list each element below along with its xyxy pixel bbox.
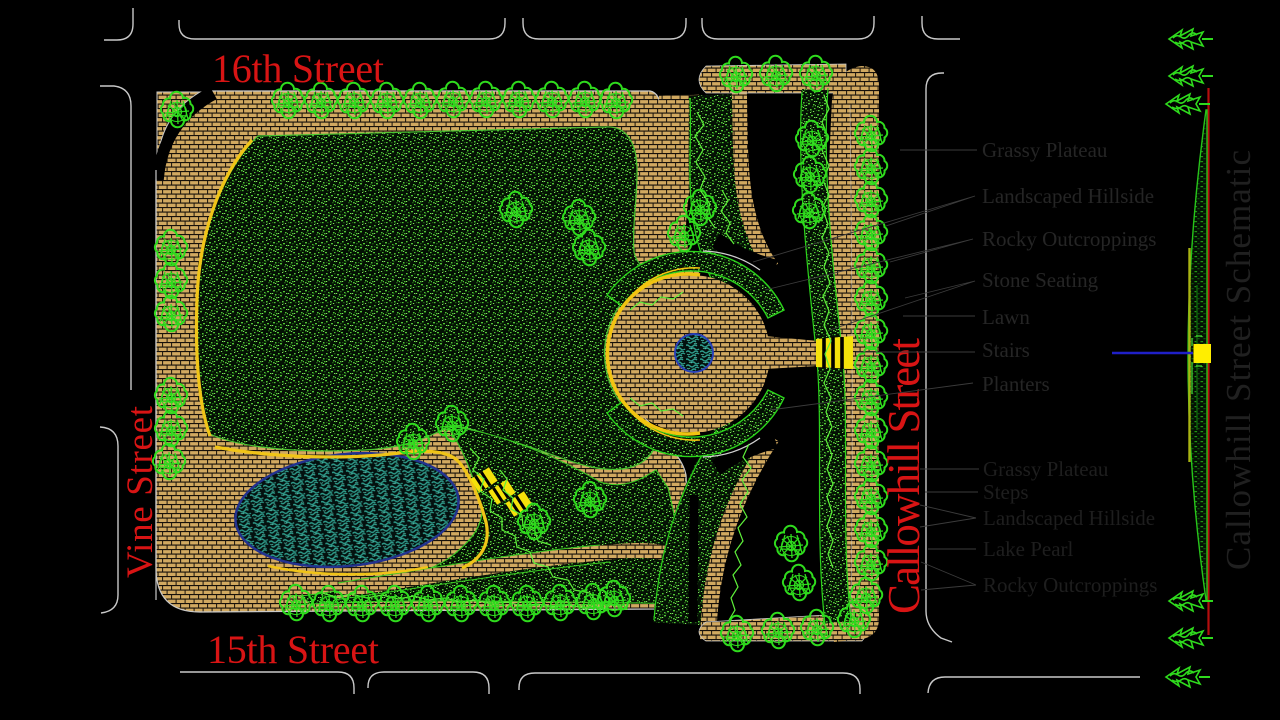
svg-text:Callowhill Street Schematic: Callowhill Street Schematic — [1219, 150, 1258, 570]
svg-text:Lake Pearl: Lake Pearl — [983, 537, 1074, 561]
svg-text:16th Street: 16th Street — [212, 46, 384, 91]
svg-text:Lawn: Lawn — [982, 305, 1030, 329]
svg-text:Grassy Plateau: Grassy Plateau — [982, 138, 1108, 162]
svg-text:Planters: Planters — [982, 372, 1050, 396]
svg-text:Grassy Plateau: Grassy Plateau — [983, 457, 1109, 481]
svg-text:Vine Street: Vine Street — [120, 405, 161, 578]
svg-text:Stairs: Stairs — [982, 338, 1030, 362]
svg-text:Stone Seating: Stone Seating — [982, 268, 1099, 292]
svg-text:15th Street: 15th Street — [207, 627, 379, 672]
svg-text:Landscaped Hillside: Landscaped Hillside — [983, 506, 1155, 530]
svg-text:Rocky Outcroppings: Rocky Outcroppings — [982, 227, 1156, 251]
svg-text:Callowhill Street: Callowhill Street — [879, 338, 929, 614]
svg-text:Rocky Outcroppings: Rocky Outcroppings — [983, 573, 1157, 597]
svg-text:Steps: Steps — [983, 480, 1029, 504]
svg-text:Landscaped Hillside: Landscaped Hillside — [982, 184, 1154, 208]
